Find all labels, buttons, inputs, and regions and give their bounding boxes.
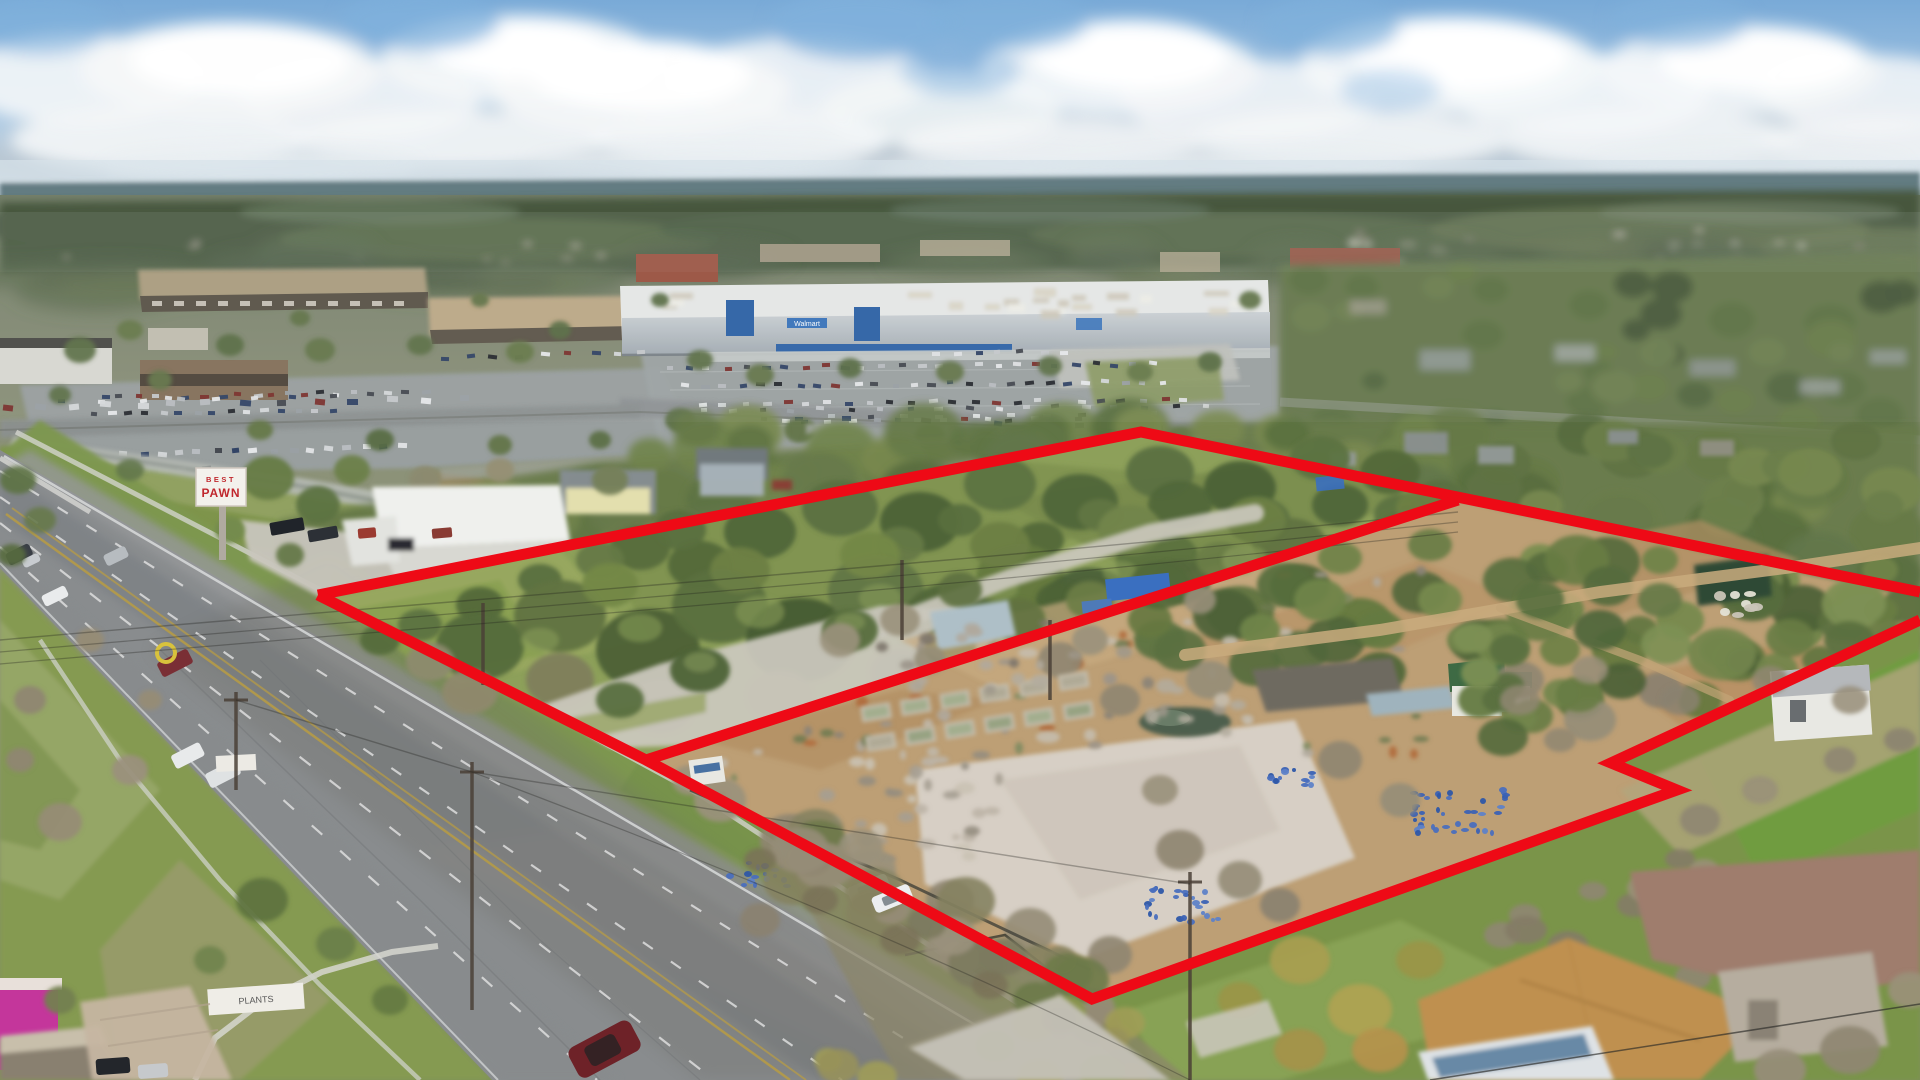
svg-text:BEST: BEST (206, 475, 236, 484)
svg-text:PAWN: PAWN (201, 486, 240, 500)
